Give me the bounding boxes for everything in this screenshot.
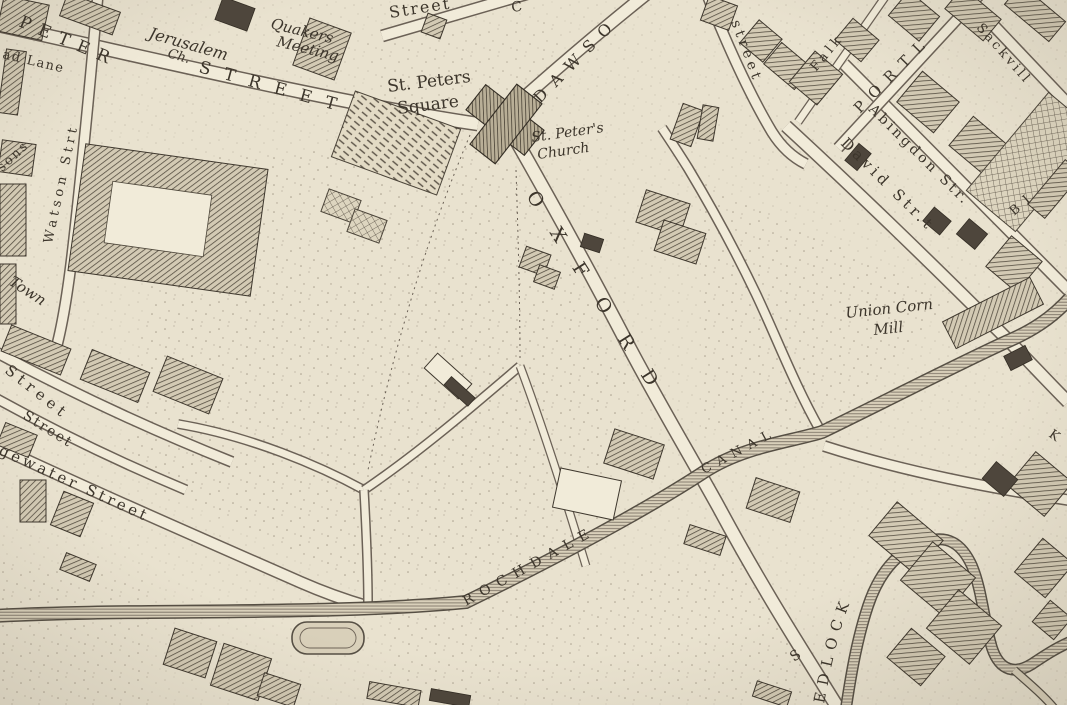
map-canvas: PETER STREET ad Lane Jerusalem Ch. Quake…: [0, 0, 1067, 705]
engraved-map: PETER STREET ad Lane Jerusalem Ch. Quake…: [0, 0, 1067, 705]
vignette: [0, 0, 1067, 705]
